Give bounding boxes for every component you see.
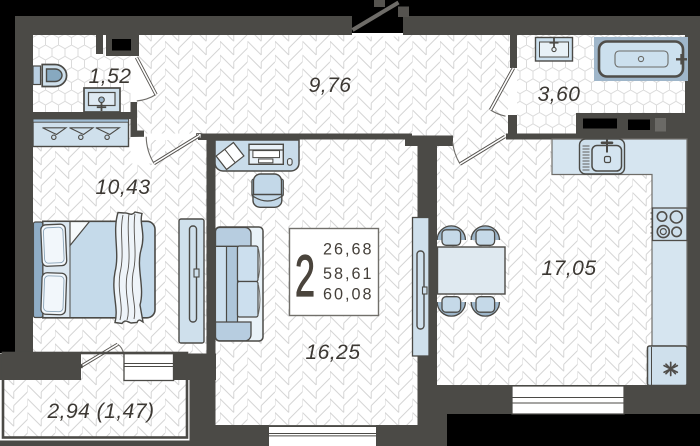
- svg-text:3,60: 3,60: [538, 83, 581, 106]
- svg-text:10,43: 10,43: [95, 176, 150, 199]
- svg-text:58,61: 58,61: [323, 265, 374, 283]
- svg-text:26,68: 26,68: [323, 241, 374, 259]
- svg-text:60,08: 60,08: [323, 286, 374, 304]
- svg-text:17,05: 17,05: [541, 257, 596, 280]
- svg-text:1,52: 1,52: [89, 65, 132, 88]
- svg-text:2,94 (1,47): 2,94 (1,47): [46, 400, 154, 423]
- svg-text:16,25: 16,25: [305, 341, 360, 364]
- svg-text:9,76: 9,76: [309, 74, 352, 97]
- svg-text:2: 2: [295, 244, 315, 309]
